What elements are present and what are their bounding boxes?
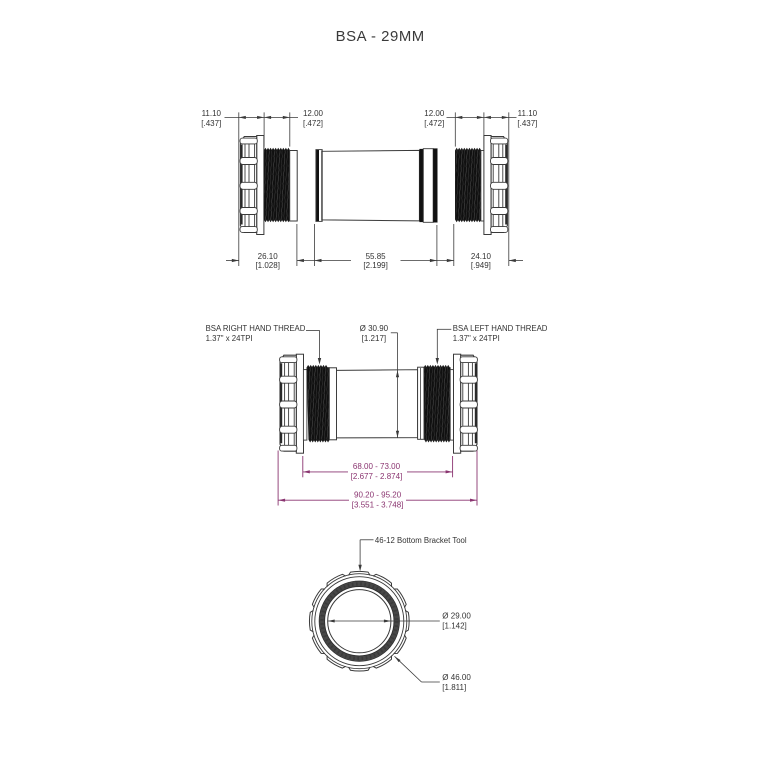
svg-text:[1.217]: [1.217] [362,334,386,343]
svg-text:[1.028]: [1.028] [255,261,279,270]
svg-text:[1.811]: [1.811] [442,683,466,692]
svg-text:BSA - 29MM: BSA - 29MM [336,29,425,45]
svg-text:[1.142]: [1.142] [442,622,466,631]
svg-text:1.37" x 24TPI: 1.37" x 24TPI [453,334,500,343]
svg-text:11.10: 11.10 [202,109,222,118]
svg-text:[.472]: [.472] [303,119,323,128]
svg-text:26.10: 26.10 [258,252,279,261]
svg-text:[.437]: [.437] [517,119,537,128]
svg-text:[2.677 - 2.874]: [2.677 - 2.874] [351,472,403,481]
svg-text:[.949]: [.949] [471,261,491,270]
svg-text:[2.199]: [2.199] [363,261,387,270]
svg-text:12.00: 12.00 [424,109,445,118]
svg-text:[.437]: [.437] [201,119,221,128]
svg-text:[3.551 - 3.748]: [3.551 - 3.748] [352,501,404,510]
svg-text:BSA LEFT HAND THREAD: BSA LEFT HAND THREAD [453,324,548,333]
svg-text:24.10: 24.10 [471,252,492,261]
svg-text:68.00 - 73.00: 68.00 - 73.00 [353,462,401,471]
svg-text:46-12 Bottom Bracket Tool: 46-12 Bottom Bracket Tool [375,536,467,545]
svg-text:Ø 46.00: Ø 46.00 [442,673,471,682]
svg-text:BSA RIGHT HAND THREAD: BSA RIGHT HAND THREAD [206,324,306,333]
svg-text:55.85: 55.85 [366,252,387,261]
svg-text:90.20 - 95.20: 90.20 - 95.20 [354,490,402,499]
svg-text:Ø 30.90: Ø 30.90 [360,324,389,333]
svg-text:1.37" x 24TPI: 1.37" x 24TPI [206,334,253,343]
svg-text:11.10: 11.10 [518,109,538,118]
svg-text:[.472]: [.472] [424,119,444,128]
svg-text:Ø 29.00: Ø 29.00 [442,611,471,620]
svg-text:12.00: 12.00 [303,109,324,118]
